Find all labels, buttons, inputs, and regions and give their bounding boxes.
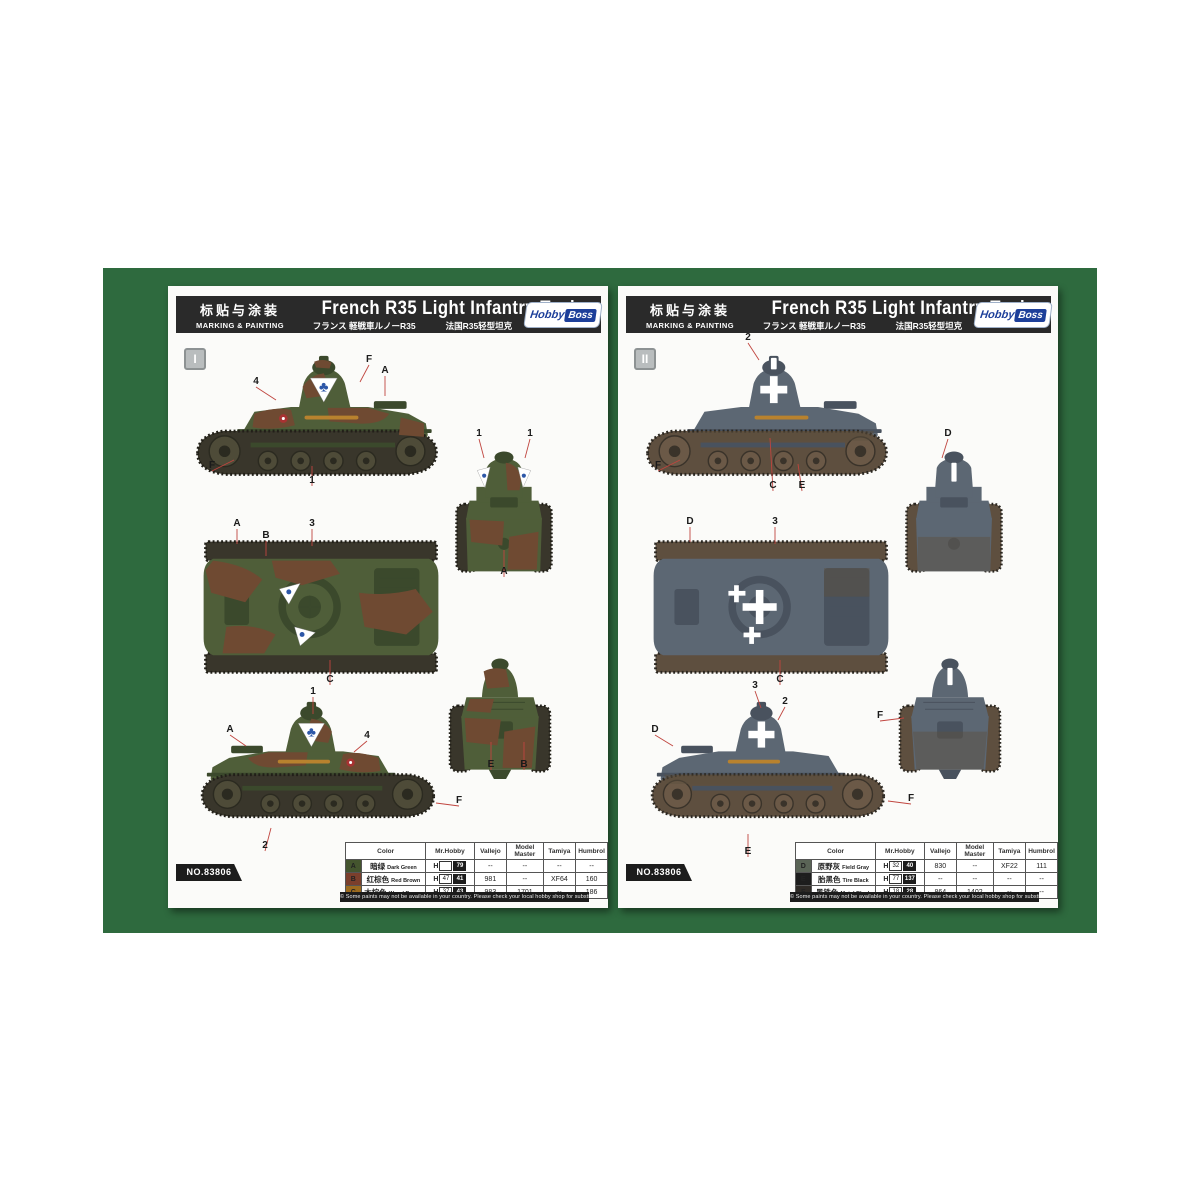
footer-note: © Some paints may not be available in yo… (340, 892, 589, 902)
green-mat: 标贴与涂装 MARKING & PAINTING French R35 Ligh… (103, 268, 1097, 933)
color-letter-swatch: B (346, 873, 362, 886)
paint-code-cell: 111 (1026, 860, 1058, 873)
kit-number-tab: NO.83806 (626, 864, 692, 881)
color-name-cell: 红棕色Red Brown (361, 873, 426, 886)
page-header: 标贴与涂装 MARKING & PAINTING French R35 Ligh… (176, 296, 601, 333)
table-col-header: Mr.Hobby (426, 843, 474, 860)
paint-code-cell: -- (507, 873, 543, 886)
tank-side-view-right: ♣ (183, 354, 453, 484)
table-row: E胎黑色Tire BlackH77137-------- (796, 873, 1058, 886)
table-col-header: Mr.Hobby (876, 843, 924, 860)
paint-code-cell: -- (957, 860, 993, 873)
callout-label-D: D (944, 428, 951, 439)
callout-label-1: 1 (310, 686, 316, 697)
paint-reference-table: ColorMr.HobbyVallejoModel MasterTamiyaHu… (345, 842, 608, 899)
callout-label-3: 3 (772, 516, 778, 527)
mr-hobby-cell: H79 (426, 860, 474, 873)
color-name-cell: 原野灰Field Gray (811, 860, 876, 873)
callout-label-D: D (686, 516, 693, 527)
callout-label-1: 1 (476, 428, 482, 439)
callout-label-A: A (233, 518, 240, 529)
table-row: D原野灰Field GrayH3240830--XF22111 (796, 860, 1058, 873)
mr-hobby-cell: H77137 (876, 873, 924, 886)
turret-stripe-marking (951, 463, 956, 482)
callout-label-1: 1 (527, 428, 533, 439)
color-letter-swatch: A (346, 860, 362, 873)
table-col-header: Model Master (507, 843, 543, 860)
paint-reference-table: ColorMr.HobbyVallejoModel MasterTamiyaHu… (795, 842, 1058, 899)
paint-code-cell: -- (993, 873, 1026, 886)
subtitle-chinese: 法国R35轻型坦克 (896, 320, 963, 332)
page-marking-scheme-1: 标贴与涂装 MARKING & PAINTING French R35 Ligh… (168, 286, 608, 908)
kit-number-tab: NO.83806 (176, 864, 242, 881)
page-marking-scheme-2: 标贴与涂装 MARKING & PAINTING French R35 Ligh… (618, 286, 1058, 908)
club-marking: ♣ (319, 380, 329, 396)
callout-label-3: 3 (309, 518, 315, 529)
paint-code-cell: XF64 (543, 873, 576, 886)
paint-code-cell: 160 (576, 873, 608, 886)
table-col-header: Humbrol (576, 843, 608, 860)
paint-code-cell: 830 (924, 860, 957, 873)
paint-code-cell: XF22 (993, 860, 1026, 873)
table-col-header: Humbrol (1026, 843, 1058, 860)
page-header: 标贴与涂装 MARKING & PAINTING French R35 Ligh… (626, 296, 1051, 333)
tank-top-view (188, 536, 454, 678)
tank-side-view-left: ♣ (186, 700, 448, 826)
subtitle-japanese: フランス 軽戦車ルノーR35 (763, 320, 866, 332)
header-cn-label: 标贴与涂装 (176, 300, 304, 319)
paint-code-cell: 981 (474, 873, 507, 886)
table-col-header: Tamiya (993, 843, 1026, 860)
header-en-label: MARKING & PAINTING (176, 321, 304, 330)
tank-side-view-right (633, 354, 903, 484)
table-col-header: Color (796, 843, 876, 860)
callout-label-2: 2 (262, 840, 268, 851)
paint-table-wrap: ColorMr.HobbyVallejoModel MasterTamiyaHu… (795, 842, 1058, 899)
table-col-header: Color (346, 843, 426, 860)
logo-boss-text: Boss (1014, 309, 1046, 322)
table-col-header: Vallejo (474, 843, 507, 860)
subtitle-chinese: 法国R35轻型坦克 (446, 320, 513, 332)
paint-code-cell: -- (924, 873, 957, 886)
hobbyboss-logo: Hobby Boss (523, 302, 603, 328)
logo-hobby-text: Hobby (979, 309, 1015, 321)
header-left-block: 标贴与涂装 MARKING & PAINTING (176, 296, 304, 333)
mr-hobby-cell: H3240 (876, 860, 924, 873)
callout-label-2: 2 (745, 332, 751, 343)
logo-hobby-text: Hobby (529, 309, 565, 321)
color-name-cell: 胎黑色Tire Black (811, 873, 876, 886)
footer-note: © Some paints may not be available in yo… (790, 892, 1039, 902)
table-row: B红棕色Red BrownH4741981--XF64160 (346, 873, 608, 886)
paint-table-wrap: ColorMr.HobbyVallejoModel MasterTamiyaHu… (345, 842, 608, 899)
header-cn-label: 标贴与涂装 (626, 300, 754, 319)
tank-side-view-left (636, 700, 898, 826)
color-letter-swatch: D (796, 860, 812, 873)
paint-code-cell: -- (474, 860, 507, 873)
paint-code-cell: -- (1026, 873, 1058, 886)
mr-hobby-cell: H4741 (426, 873, 474, 886)
tank-front-view (902, 442, 1006, 580)
scanned-instruction-sheet: 标贴与涂装 MARKING & PAINTING French R35 Ligh… (0, 0, 1200, 1200)
tank-rear-view (444, 642, 556, 780)
callout-label-F: F (456, 795, 462, 806)
tank-top-view (638, 536, 904, 678)
table-row: A暗绿Dark GreenH79-------- (346, 860, 608, 873)
hobbyboss-logo: Hobby Boss (973, 302, 1053, 328)
callout-label-3: 3 (752, 680, 758, 691)
header-title-block: French R35 Light Infantry Tank フランス 軽戦車ル… (304, 296, 521, 333)
turret-stripe-marking (947, 668, 952, 685)
paint-code-cell: -- (543, 860, 576, 873)
header-en-label: MARKING & PAINTING (626, 321, 754, 330)
table-col-header: Model Master (957, 843, 993, 860)
paint-code-cell: -- (576, 860, 608, 873)
color-name-cell: 暗绿Dark Green (361, 860, 426, 873)
logo-boss-text: Boss (564, 309, 596, 322)
callout-label-E: E (745, 846, 752, 857)
tank-front-view (452, 442, 556, 580)
callout-leader-line (265, 828, 271, 851)
table-col-header: Vallejo (924, 843, 957, 860)
paint-code-cell: -- (507, 860, 543, 873)
color-letter-swatch: E (796, 873, 812, 886)
subtitle-japanese: フランス 軽戦車ルノーR35 (313, 320, 416, 332)
header-left-block: 标贴与涂装 MARKING & PAINTING (626, 296, 754, 333)
header-title-block: French R35 Light Infantry Tank フランス 軽戦車ル… (754, 296, 971, 333)
tank-rear-view (894, 642, 1006, 780)
paint-code-cell: -- (957, 873, 993, 886)
callout-label-F: F (908, 793, 914, 804)
club-marking: ♣ (307, 723, 316, 739)
table-col-header: Tamiya (543, 843, 576, 860)
